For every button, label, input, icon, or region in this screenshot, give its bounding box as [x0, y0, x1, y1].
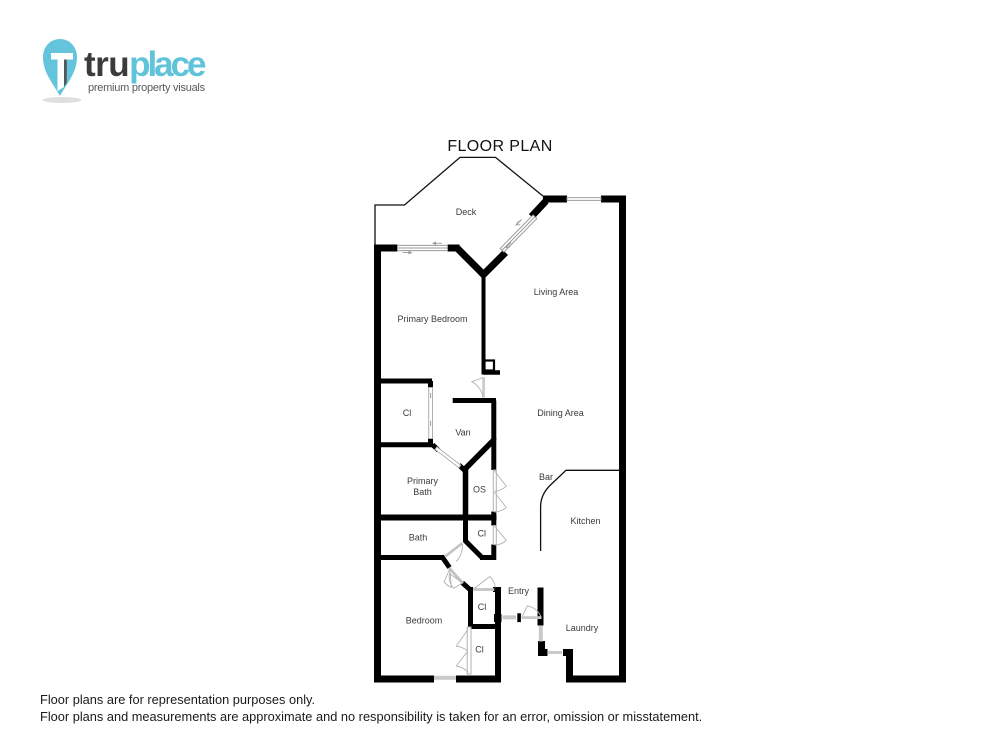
- svg-text:Van: Van: [455, 428, 470, 438]
- svg-text:FLOOR PLAN: FLOOR PLAN: [447, 138, 552, 155]
- svg-text:Primary Bedroom: Primary Bedroom: [397, 314, 467, 324]
- svg-text:Floor plans are for representa: Floor plans are for representation purpo…: [40, 692, 315, 707]
- svg-text:Entry: Entry: [508, 586, 530, 596]
- svg-text:Deck: Deck: [456, 207, 477, 217]
- svg-text:Cl: Cl: [478, 602, 487, 612]
- svg-text:Floor plans and measurements a: Floor plans and measurements are approxi…: [40, 709, 702, 724]
- svg-text:premium property visuals: premium property visuals: [88, 82, 206, 94]
- svg-text:Cl: Cl: [478, 529, 487, 539]
- svg-text:Cl: Cl: [403, 408, 412, 418]
- svg-text:Living Area: Living Area: [534, 287, 579, 297]
- svg-text:OS: OS: [473, 485, 486, 495]
- svg-text:Bath: Bath: [409, 533, 428, 543]
- svg-text:Primary: Primary: [407, 476, 438, 486]
- svg-text:Bath: Bath: [413, 487, 432, 497]
- svg-text:Laundry: Laundry: [566, 623, 599, 633]
- svg-text:truplace: truplace: [84, 45, 206, 84]
- svg-text:Bar: Bar: [539, 472, 553, 482]
- svg-text:Kitchen: Kitchen: [570, 516, 600, 526]
- svg-text:Cl: Cl: [475, 645, 484, 655]
- svg-text:Bedroom: Bedroom: [406, 616, 443, 626]
- svg-text:Dining Area: Dining Area: [537, 408, 584, 418]
